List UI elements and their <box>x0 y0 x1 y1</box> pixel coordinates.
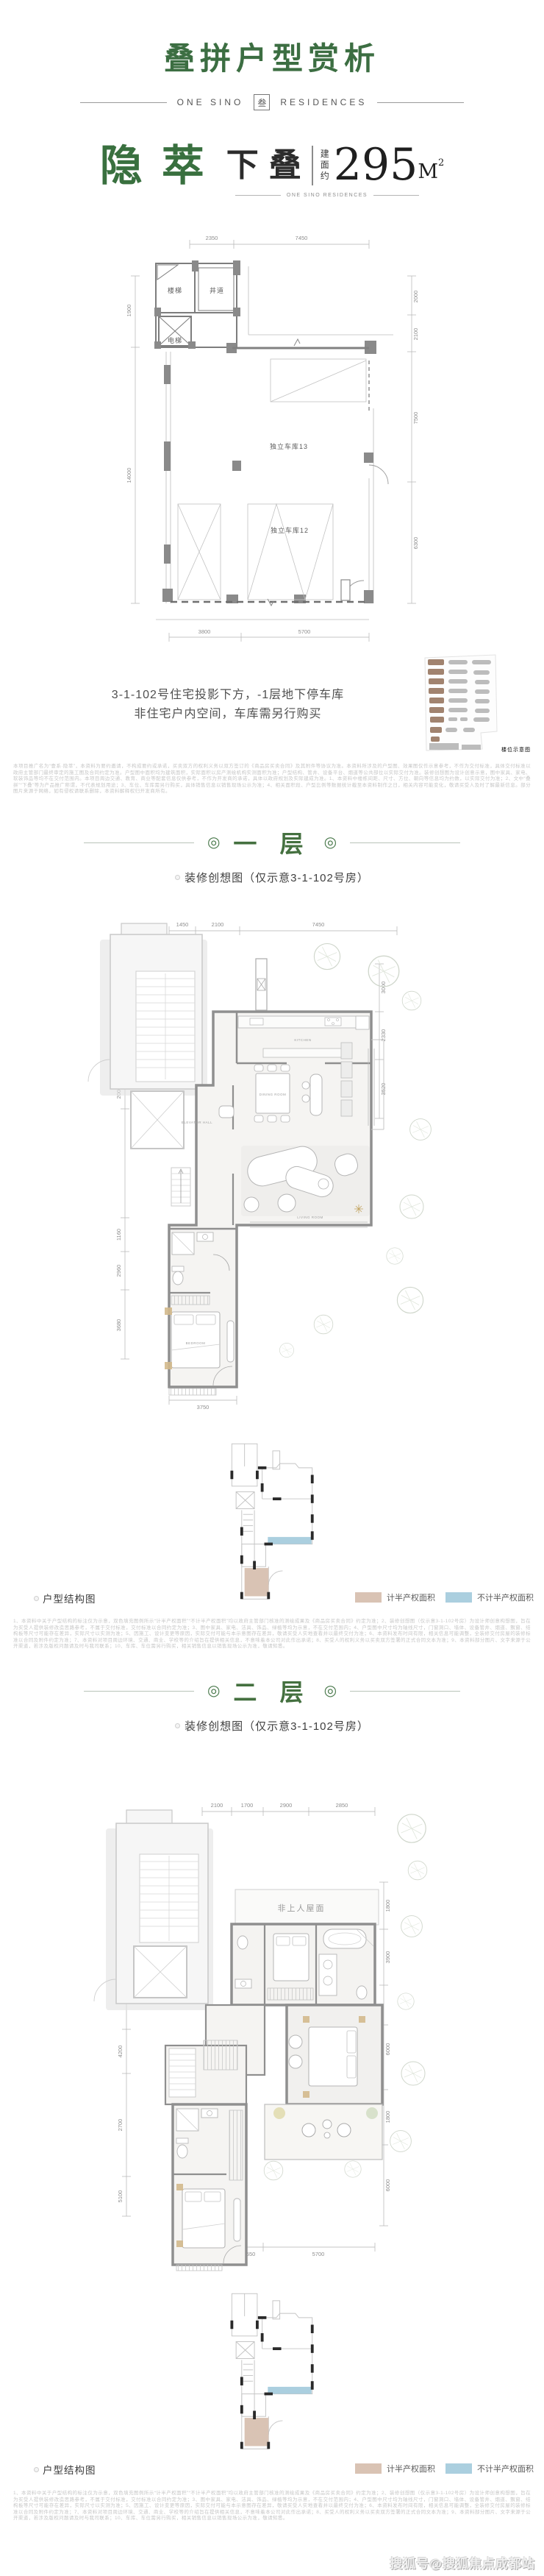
sub-brand-text: ONE SINO RESIDENCES <box>287 193 368 198</box>
bullet-dot-icon <box>175 1723 180 1728</box>
svg-text:2100: 2100 <box>211 1802 223 1809</box>
floor2-title: 二 层 <box>233 1674 310 1708</box>
svg-text:7500: 7500 <box>412 412 419 425</box>
svg-text:1800: 1800 <box>384 1900 391 1912</box>
basement-floorplan: 2350 7450 1900 14000 2000 2100 7500 6300… <box>110 221 434 662</box>
section-header-floor1: ◎ 一 层 ◎ <box>0 826 544 859</box>
svg-text:6300: 6300 <box>412 537 419 550</box>
area-prefix-1: 建 <box>321 149 329 160</box>
nohalf-area-swatch <box>445 1592 472 1603</box>
ring-icon: ◎ <box>324 1683 337 1698</box>
svg-text:2350: 2350 <box>206 235 218 241</box>
basement-note: 3-1-102号住宅投影下方，-1层地下停车库 非住宅户内空间，车库需另行购买 <box>0 686 456 724</box>
svg-text:2960: 2960 <box>115 1265 122 1277</box>
svg-text:LIVING ROOM: LIVING ROOM <box>297 1216 323 1219</box>
svg-text:7450: 7450 <box>296 235 308 241</box>
legend-nohalf-area <box>268 2387 311 2394</box>
basement-note-line1: 3-1-102号住宅投影下方，-1层地下停车库 <box>0 686 456 705</box>
svg-text:独立车库12: 独立车库12 <box>271 526 309 534</box>
svg-text:2100: 2100 <box>412 328 419 341</box>
half-area-swatch <box>355 1592 382 1603</box>
svg-text:2700: 2700 <box>117 2119 124 2132</box>
brand-left-text: ONE SINO <box>177 97 244 107</box>
unit-divider <box>312 146 313 185</box>
bullet-dot-icon <box>34 2467 39 2472</box>
floor1-renderplan: 1450 2100 7450 3000 1400 2000 2000 1160 … <box>66 909 478 1433</box>
nohalf-area-label: 不计半产权面积 <box>477 1592 534 1603</box>
unit-name-char1: 隐 <box>100 141 143 191</box>
half-area-label: 计半产权面积 <box>387 2463 435 2474</box>
page: 叠拼户型赏析 ONE SINO 叁 RESIDENCES 隐萃 下叠 建 面 约… <box>0 0 544 2576</box>
svg-text:7450: 7450 <box>312 921 325 928</box>
bullet-dot-icon <box>34 1596 39 1601</box>
svg-text:ELEVATOR HALL: ELEVATOR HALL <box>182 1121 212 1124</box>
watermark: 搜狐号@搜狐焦点成都站 <box>390 2553 535 2572</box>
svg-text:1450: 1450 <box>176 921 189 928</box>
svg-text:3900: 3900 <box>384 1951 391 1964</box>
brand-rule-left <box>80 102 167 103</box>
svg-text:1900: 1900 <box>126 305 132 317</box>
section-header-floor2: ◎ 二 层 ◎ <box>0 1674 544 1708</box>
area-prefix-3: 约 <box>321 171 329 182</box>
brand-line: ONE SINO 叁 RESIDENCES <box>0 94 544 110</box>
svg-text:2900: 2900 <box>280 1802 293 1809</box>
disclaimer-floor1: 1、本资料中关于户型结构的标注仅为示意，双色填充图例所示“计半产权面积”“不计半… <box>13 1619 531 1650</box>
svg-text:3000: 3000 <box>380 982 387 994</box>
svg-text:6000: 6000 <box>384 2179 391 2192</box>
floor2-caption-row: 装修创想图（仅示意3-1-102号房） <box>0 1718 544 1734</box>
structure-label-row: 户型结构图 <box>34 1591 96 1605</box>
site-location-diagram: 楼位示意图 <box>419 649 544 761</box>
svg-text:电梯: 电梯 <box>168 336 182 344</box>
site-buildings-brown <box>428 659 444 742</box>
site-caption: 楼位示意图 <box>501 746 531 753</box>
unit-name-char2: 萃 <box>162 141 204 191</box>
floor1-caption-row: 装修创想图（仅示意3-1-102号房） <box>0 870 544 885</box>
svg-text:2100: 2100 <box>212 921 224 928</box>
svg-text:2000: 2000 <box>412 291 419 303</box>
svg-text:楼梯: 楼梯 <box>168 286 182 294</box>
structure-label-row: 户型结构图 <box>34 2462 96 2477</box>
disclaimer-top: 本项目推广名为“壹系·隐萃”，本资料为要约邀请，不构成要约或承诺，买卖双方的权利… <box>13 764 531 795</box>
ring-icon: ◎ <box>207 1683 220 1698</box>
floor2-structure-row: 户型结构图 计半产权面积 不计半产权面积 <box>0 2462 544 2477</box>
unit-name: 隐萃 <box>100 143 204 188</box>
svg-text:1160: 1160 <box>115 1229 122 1241</box>
svg-text:DINING ROOM: DINING ROOM <box>260 1093 287 1096</box>
svg-text:5700: 5700 <box>312 2251 325 2257</box>
half-area-swatch <box>355 2463 382 2474</box>
svg-text:5100: 5100 <box>117 2190 124 2203</box>
page-title: 叠拼户型赏析 <box>0 34 544 79</box>
structure-legend: 计半产权面积 不计半产权面积 <box>355 1592 534 1603</box>
brand-rule-right <box>377 102 464 103</box>
svg-text:BEDROOM: BEDROOM <box>186 1341 206 1345</box>
structure-legend: 计半产权面积 不计半产权面积 <box>355 2463 534 2474</box>
svg-text:KITCHEN: KITCHEN <box>294 1038 311 1042</box>
floor1-title: 一 层 <box>233 826 310 859</box>
floor1-structure-diagram <box>169 1431 412 1604</box>
svg-text:井道: 井道 <box>210 286 224 294</box>
structure-label: 户型结构图 <box>43 1591 96 1605</box>
area-value: 295 <box>334 143 418 187</box>
svg-text:4200: 4200 <box>117 2045 124 2058</box>
floor2-structure-diagram <box>169 2281 412 2454</box>
svg-text:5700: 5700 <box>298 628 311 635</box>
bullet-dot-icon <box>175 875 180 880</box>
nohalf-area-label: 不计半产权面积 <box>477 2463 534 2474</box>
svg-text:14000: 14000 <box>126 468 132 483</box>
ring-icon: ◎ <box>324 835 337 850</box>
area-unit: M <box>418 162 438 182</box>
sub-brand-line: ONE SINO RESIDENCES <box>235 193 419 198</box>
ring-icon: ◎ <box>207 835 220 850</box>
floor1-caption: 装修创想图（仅示意3-1-102号房） <box>185 870 369 885</box>
floor1-structure-row: 户型结构图 计半产权面积 不计半产权面积 <box>0 1591 544 1605</box>
brand-right-text: RESIDENCES <box>280 97 367 107</box>
svg-text:3800: 3800 <box>198 628 211 635</box>
floor2-renderplan: 2100 1700 2900 2850 2000 2000 1900 4200 … <box>66 1759 478 2274</box>
basement-note-line2: 非住宅户内空间，车库需另行购买 <box>0 705 456 724</box>
half-area-label: 计半产权面积 <box>387 1592 435 1603</box>
svg-text:3680: 3680 <box>115 1319 122 1332</box>
area-prefix-2: 面 <box>321 160 329 171</box>
floor2-caption: 装修创想图（仅示意3-1-102号房） <box>185 1718 369 1734</box>
nohalf-area-swatch <box>445 2463 472 2474</box>
legend-nohalf-area <box>268 1537 311 1544</box>
legend-half-area <box>245 2418 269 2446</box>
svg-text:1800: 1800 <box>384 2111 391 2123</box>
unit-type-label: 下叠 <box>226 143 312 188</box>
area-prefix: 建 面 约 <box>321 143 329 187</box>
svg-text:6000: 6000 <box>384 2043 391 2056</box>
roof-label: 非上人屋面 <box>278 1903 326 1913</box>
area-sup: 2 <box>438 157 444 168</box>
svg-text:1700: 1700 <box>241 1802 254 1809</box>
unit-title-row: 隐萃 下叠 建 面 约 295 M 2 <box>0 143 544 188</box>
svg-text:3750: 3750 <box>197 1404 210 1411</box>
disclaimer-floor2: 1、本资料中关于户型结构的标注仅为示意，双色填充图例所示“计半产权面积”“不计半… <box>13 2491 531 2522</box>
structure-label: 户型结构图 <box>43 2462 96 2477</box>
brand-logo-icon: 叁 <box>254 94 270 110</box>
svg-text:独立车库13: 独立车库13 <box>270 442 308 450</box>
svg-text:2850: 2850 <box>336 1802 348 1809</box>
